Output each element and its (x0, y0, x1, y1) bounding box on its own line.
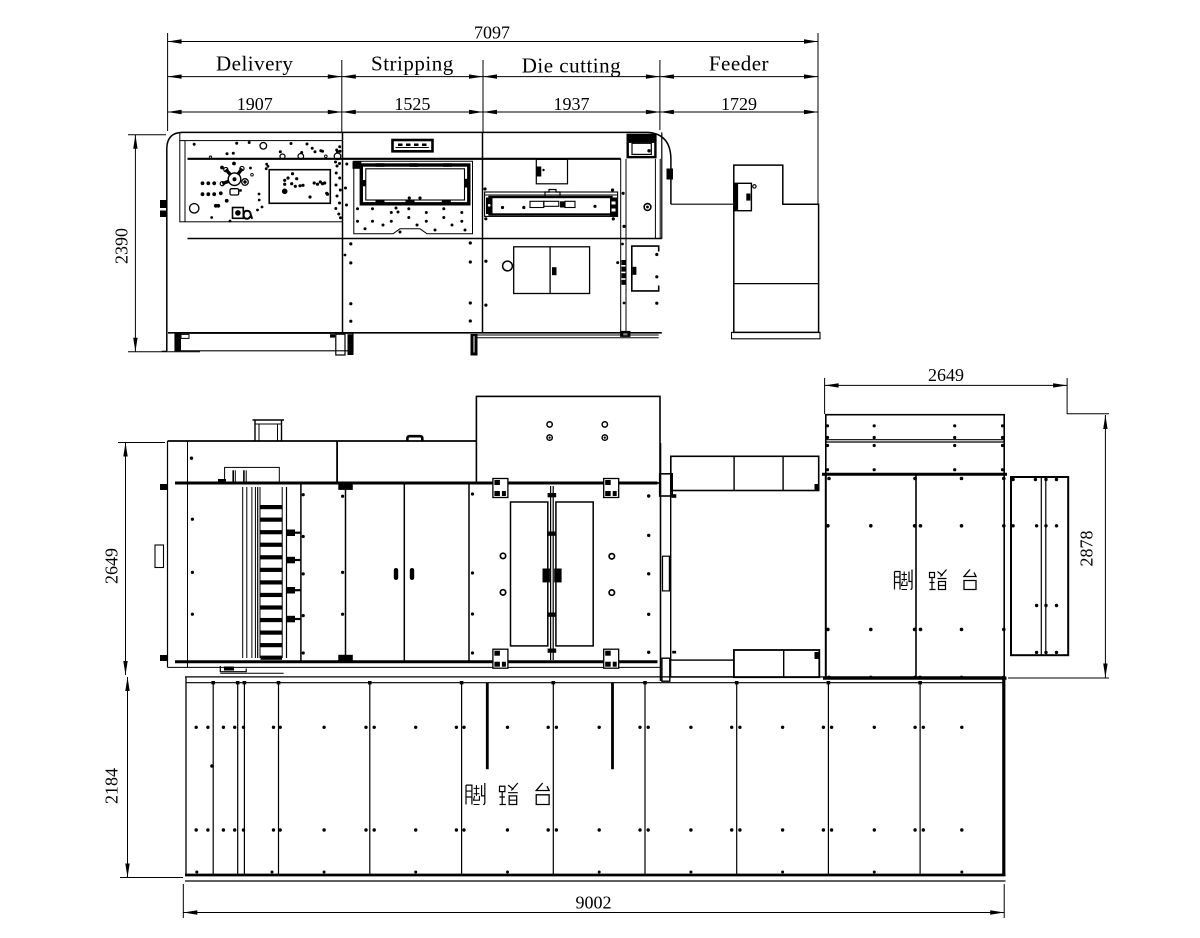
svg-text:1525: 1525 (394, 94, 430, 114)
svg-text:1937: 1937 (553, 94, 589, 114)
svg-text:Die cutting: Die cutting (522, 54, 621, 78)
svg-text:Delivery: Delivery (216, 52, 293, 76)
svg-text:1907: 1907 (237, 94, 273, 114)
svg-text:7097: 7097 (474, 23, 510, 43)
svg-text:2649: 2649 (102, 548, 122, 584)
svg-text:Feeder: Feeder (709, 52, 769, 76)
svg-text:9002: 9002 (576, 893, 612, 913)
svg-text:2390: 2390 (112, 228, 132, 264)
svg-text:1729: 1729 (721, 94, 757, 114)
svg-text:Stripping: Stripping (371, 52, 454, 76)
svg-text:2184: 2184 (102, 768, 122, 804)
svg-text:2878: 2878 (1077, 531, 1097, 567)
svg-text:2649: 2649 (928, 365, 964, 385)
